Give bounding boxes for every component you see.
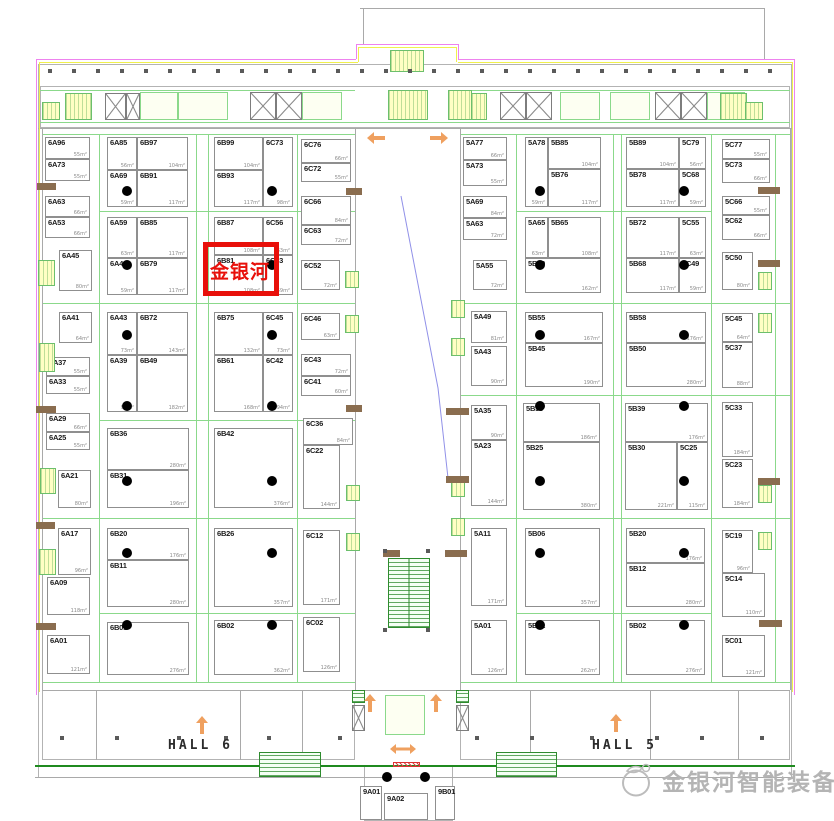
booth-label: 6C73 — [266, 138, 283, 147]
booth-5B72: 5B72117m² — [626, 217, 679, 258]
column-dot — [267, 186, 277, 196]
booth-area: 221m² — [658, 503, 674, 509]
booth-5C01: 5C01121m² — [722, 635, 765, 677]
booth-label: 5B39 — [628, 404, 645, 413]
booth-label: 9B01 — [438, 787, 455, 796]
booth-area: 90m² — [491, 379, 504, 385]
column-dot — [267, 548, 277, 558]
boundary-yellow-line — [358, 47, 456, 48]
booth-label: 5B89 — [629, 138, 646, 147]
booth-label: 6A01 — [50, 636, 67, 645]
booth-5B85: 5B85104m² — [548, 137, 601, 169]
dimension-line — [42, 682, 355, 683]
booth-5A63: 5A6372m² — [463, 218, 507, 240]
booth-5B30: 5B30221m² — [625, 442, 677, 510]
dimension-line — [516, 613, 711, 614]
right-arrow-icon — [430, 132, 448, 144]
booth-area: 66m² — [74, 231, 87, 237]
column-dot — [535, 401, 545, 411]
booth-6B97: 6B97104m² — [137, 137, 188, 170]
column-mark — [480, 69, 484, 73]
booth-5C73: 5C7366m² — [722, 159, 770, 183]
booth-area: 182m² — [169, 405, 185, 411]
booth-label: 6B93 — [217, 171, 234, 180]
booth-area: 84m² — [337, 438, 350, 444]
dimension-line — [516, 211, 711, 212]
stairs-icon — [39, 549, 56, 575]
booth-area: 184m² — [734, 501, 750, 507]
booth-label: 5B30 — [628, 443, 645, 452]
booth-label: 5B65 — [551, 218, 568, 227]
booth-area: 186m² — [581, 435, 597, 441]
booth-label: 6B97 — [140, 138, 157, 147]
booth-label: 6A09 — [50, 578, 67, 587]
column-mark — [600, 69, 604, 73]
booth-6C63: 6C6372m² — [301, 225, 351, 245]
booth-area: 171m² — [488, 599, 504, 605]
booth-5A73: 5A7355m² — [463, 160, 507, 186]
booth-area: 262m² — [581, 668, 597, 674]
dimension-line — [99, 135, 100, 682]
booth-area: 88m² — [737, 381, 750, 387]
boundary-yellow-line — [39, 62, 40, 692]
booth-label: 5B55 — [528, 313, 545, 322]
booth-5B25: 5B25380m² — [523, 442, 600, 510]
dimension-line — [196, 135, 197, 682]
booth-area: 117m² — [169, 200, 185, 206]
booth-5A49: 5A4981m² — [471, 311, 507, 343]
escalator-icon — [259, 752, 321, 777]
booth-area: 115m² — [689, 503, 705, 509]
booth-5C77: 5C7755m² — [722, 139, 770, 159]
booth-area: 176m² — [686, 556, 702, 562]
lintel — [346, 188, 362, 195]
booth-area: 280m² — [686, 600, 702, 606]
booth-area: 280m² — [687, 380, 703, 386]
booth-label: 5B25 — [526, 443, 543, 452]
column-mark — [624, 69, 628, 73]
booth-6B01: 6B01276m² — [107, 622, 189, 675]
dimension-line — [460, 134, 790, 135]
booth-6C52: 6C5272m² — [301, 260, 340, 290]
wall-line — [530, 690, 531, 760]
booth-label: 5B12 — [629, 564, 646, 573]
stairs-icon — [758, 532, 772, 550]
dimension-line — [42, 518, 355, 519]
booth-area: 55m² — [491, 179, 504, 185]
booth-label: 5B06 — [528, 529, 545, 538]
stairs-icon — [346, 485, 360, 501]
dimension-line — [208, 135, 209, 682]
booth-5C23: 5C23184m² — [722, 459, 753, 508]
booth-area: 126m² — [321, 665, 337, 671]
booth-area: 104m² — [169, 163, 185, 169]
column-mark — [552, 69, 556, 73]
booth-label: 5C45 — [725, 314, 742, 323]
stairs-icon — [38, 260, 55, 286]
booth-area: 55m² — [74, 152, 87, 158]
booth-6A63: 6A6366m² — [45, 196, 90, 217]
booth-area: 121m² — [746, 670, 762, 676]
elevator-icon — [500, 92, 526, 120]
dimension-line — [460, 303, 790, 304]
booth-label: 6C46 — [304, 314, 321, 323]
column-mark — [432, 69, 436, 73]
column-mark — [168, 69, 172, 73]
booth-label: 6B49 — [140, 356, 157, 365]
stairs-icon — [345, 315, 359, 333]
lintel — [758, 260, 780, 267]
booth-6C73: 6C7398m² — [263, 137, 293, 207]
stairs-icon — [758, 272, 772, 290]
booth-label: 6C36 — [306, 419, 323, 428]
booth-area: 72m² — [324, 283, 337, 289]
booth-label: 6C42 — [266, 356, 283, 365]
lr-arrow-icon — [390, 744, 416, 754]
highlight-text: 金银河 — [210, 257, 270, 284]
booth-5B76: 5B76117m² — [548, 169, 601, 207]
dimension-line — [460, 682, 790, 683]
booth-area: 117m² — [660, 286, 676, 292]
dimension-line — [40, 90, 355, 91]
booth-area: 280m² — [170, 600, 186, 606]
booth-label: 6A25 — [49, 433, 66, 442]
column-dot — [535, 548, 545, 558]
booth-6B26: 6B26357m² — [214, 528, 293, 607]
booth-5C19: 5C1996m² — [722, 530, 753, 573]
booth-label: 6B75 — [217, 313, 234, 322]
booth-label: 5C25 — [680, 443, 697, 452]
booth-area: 55m² — [74, 369, 87, 375]
booth-6A85: 6A8556m² — [107, 137, 137, 170]
dimension-line — [775, 135, 776, 682]
column-mark — [48, 69, 52, 73]
column-mark — [383, 549, 387, 553]
booth-label: 6B42 — [217, 429, 234, 438]
booth-9A01: 9A01 — [360, 786, 382, 820]
booth-6A21: 6A2180m² — [58, 470, 91, 508]
booth-5C79: 5C7956m² — [679, 137, 706, 169]
booth-6A33: 6A3355m² — [46, 376, 90, 394]
boundary-magenta-line — [458, 44, 459, 59]
column-mark — [528, 69, 532, 73]
booth-area: 117m² — [169, 251, 185, 257]
column-dot — [679, 260, 689, 270]
lintel — [445, 550, 467, 557]
booth-label: 5C55 — [682, 218, 699, 227]
wall-line — [790, 128, 791, 690]
column-mark — [456, 69, 460, 73]
stairs-icon — [65, 93, 92, 120]
booth-label: 6C63 — [304, 226, 321, 235]
booth-label: 6B99 — [217, 138, 234, 147]
booth-5A69: 5A6984m² — [463, 196, 507, 218]
booth-label: 6A69 — [110, 171, 127, 180]
booth-6A96: 6A9655m² — [45, 137, 90, 159]
column-dot — [122, 260, 132, 270]
booth-5C14: 5C14110m² — [722, 573, 765, 617]
stairs-icon — [345, 271, 359, 288]
booth-9A02: 9A02 — [384, 793, 428, 820]
booth-label: 6A29 — [49, 414, 66, 423]
booth-label: 6A53 — [48, 218, 65, 227]
booth-area: 121m² — [71, 667, 87, 673]
column-mark — [700, 736, 704, 740]
hall-6-label: HALL 6 — [168, 738, 233, 753]
column-mark — [696, 69, 700, 73]
booth-9B01: 9B01 — [435, 786, 455, 820]
booth-area: 176m² — [170, 553, 186, 559]
boundary-yellow-line — [39, 62, 358, 63]
booth-label: 5A35 — [474, 406, 491, 415]
booth-area: 117m² — [582, 200, 598, 206]
booth-label: 5B72 — [629, 218, 646, 227]
stairs-icon — [451, 518, 465, 536]
booth-label: 6A63 — [48, 197, 65, 206]
booth-area: 84m² — [491, 211, 504, 217]
elevator-icon — [250, 92, 276, 120]
column-dot — [420, 772, 430, 782]
booth-area: 59m² — [690, 286, 703, 292]
booth-area: 56m² — [121, 163, 134, 169]
booth-label: 6A85 — [110, 138, 127, 147]
service-room — [140, 92, 178, 120]
booth-area: 80m² — [76, 284, 89, 290]
booth-area: 276m² — [170, 668, 186, 674]
booth-area: 118m² — [71, 608, 87, 614]
booth-area: 90m² — [491, 433, 504, 439]
booth-6B42: 6B42376m² — [214, 428, 293, 508]
column-dot — [679, 401, 689, 411]
service-room — [385, 695, 425, 735]
column-mark — [426, 549, 430, 553]
floor-plan-canvas: 6A9655m²6A7355m²6A6366m²6A5366m²6A4580m²… — [0, 0, 834, 821]
dimension-line — [460, 395, 790, 396]
booth-6B11: 6B11280m² — [107, 560, 189, 607]
booth-label: 6A17 — [61, 529, 78, 538]
column-dot — [122, 476, 132, 486]
booth-area: 66m² — [491, 153, 504, 159]
column-mark — [408, 69, 412, 73]
escalator-icon — [496, 752, 557, 777]
boundary-magenta-line — [356, 44, 458, 45]
booth-area: 280m² — [170, 463, 186, 469]
booth-area: 64m² — [737, 335, 750, 341]
booth-area: 104m² — [244, 163, 260, 169]
boundary-yellow-line — [458, 62, 792, 63]
booth-6A45: 6A4580m² — [59, 250, 92, 291]
booth-area: 144m² — [488, 499, 504, 505]
stairs-icon — [39, 343, 55, 372]
dimension-line — [460, 518, 790, 519]
column-mark — [720, 69, 724, 73]
booth-label: 6C41 — [304, 377, 321, 386]
booth-area: 143m² — [169, 348, 185, 354]
booth-label: 6A45 — [62, 251, 79, 260]
column-mark — [360, 69, 364, 73]
booth-label: 5A78 — [528, 138, 545, 147]
column-dot — [679, 186, 689, 196]
column-mark — [383, 628, 387, 632]
booth-6B49: 6B49182m² — [137, 355, 188, 412]
booth-area: 376m² — [274, 501, 290, 507]
column-mark — [60, 736, 64, 740]
booth-5B50: 5B50280m² — [626, 343, 706, 387]
column-dot — [535, 260, 545, 270]
booth-area: 80m² — [75, 501, 88, 507]
dimension-line — [711, 135, 712, 682]
logo-text: 金银河智能装备 — [662, 763, 834, 797]
wall-line — [738, 690, 739, 760]
booth-area: 162m² — [582, 286, 598, 292]
booth-area: 72m² — [491, 283, 504, 289]
booth-6C46: 6C4663m² — [301, 313, 340, 340]
booth-6B02: 6B02362m² — [214, 620, 293, 675]
booth-area: 63m² — [690, 251, 703, 257]
booth-label: 5A55 — [476, 261, 493, 270]
booth-6C02: 6C02126m² — [303, 617, 340, 672]
column-mark — [504, 69, 508, 73]
column-mark — [192, 69, 196, 73]
booth-label: 5B50 — [629, 344, 646, 353]
column-mark — [384, 69, 388, 73]
lintel — [346, 405, 362, 412]
booth-6A01: 6A01121m² — [47, 635, 90, 674]
column-mark — [216, 69, 220, 73]
column-dot — [679, 548, 689, 558]
booth-5B12: 5B12280m² — [626, 563, 705, 607]
booth-area: 60m² — [335, 389, 348, 395]
booth-area: 98m² — [277, 200, 290, 206]
booth-area: 56m² — [690, 162, 703, 168]
booth-area: 357m² — [581, 600, 597, 606]
booth-area: 144m² — [321, 502, 337, 508]
column-mark — [672, 69, 676, 73]
service-room — [178, 92, 228, 120]
wall-line — [363, 8, 364, 44]
wall-line — [96, 690, 97, 760]
booth-5C55: 5C5563m² — [679, 217, 706, 258]
escalator-icon — [456, 690, 469, 703]
booth-area: 117m² — [660, 251, 676, 257]
booth-5C45: 5C4564m² — [722, 313, 753, 342]
boundary-yellow-line — [792, 62, 793, 692]
booth-6B79: 6B79117m² — [137, 258, 188, 295]
booth-5B20: 5B20176m² — [626, 528, 705, 563]
booth-label: 6B11 — [110, 561, 127, 570]
booth-label: 5A65 — [528, 218, 545, 227]
booth-5B78: 5B78117m² — [626, 169, 679, 207]
column-dot — [535, 476, 545, 486]
service-room — [560, 92, 600, 120]
column-mark — [72, 69, 76, 73]
booth-5A11: 5A11171m² — [471, 528, 507, 606]
booth-label: 5C37 — [725, 343, 742, 352]
booth-label: 5C33 — [725, 403, 742, 412]
booth-area: 59m² — [532, 200, 545, 206]
stairs-icon — [745, 102, 763, 120]
booth-label: 9A02 — [387, 794, 404, 803]
column-mark — [312, 69, 316, 73]
column-dot — [267, 330, 277, 340]
booth-label: 5C50 — [725, 253, 742, 262]
escalator-icon — [388, 558, 430, 628]
up-arrow-icon — [430, 694, 442, 712]
booth-5A65: 5A6563m² — [525, 217, 548, 258]
booth-6B20: 6B20176m² — [107, 528, 189, 560]
booth-label: 5C79 — [682, 138, 699, 147]
stairs-icon — [758, 485, 772, 503]
booth-area: 72m² — [491, 233, 504, 239]
booth-5A78: 5A7859m² — [525, 137, 548, 207]
lintel — [36, 522, 55, 529]
booth-label: 5C77 — [725, 140, 742, 149]
booth-5B45: 5B45190m² — [525, 343, 603, 387]
column-mark — [144, 69, 148, 73]
booth-label: 5C62 — [725, 216, 742, 225]
lintel — [36, 406, 56, 413]
booth-area: 80m² — [737, 283, 750, 289]
booth-label: 6A59 — [110, 218, 127, 227]
booth-label: 5C01 — [725, 636, 742, 645]
column-dot — [122, 548, 132, 558]
booth-area: 132m² — [244, 348, 260, 354]
booth-5B39: 5B39176m² — [625, 403, 708, 442]
booth-area: 55m² — [74, 174, 87, 180]
booth-6C43: 6C4372m² — [301, 354, 351, 376]
booth-label: 6B26 — [217, 529, 234, 538]
elevator-icon — [276, 92, 302, 120]
booth-label: 5C23 — [725, 460, 742, 469]
booth-6B85: 6B85117m² — [137, 217, 188, 258]
column-dot — [679, 330, 689, 340]
booth-label: 5B76 — [551, 170, 568, 179]
column-mark — [115, 736, 119, 740]
booth-label: 5B85 — [551, 138, 568, 147]
booth-label: 6A96 — [48, 138, 65, 147]
booth-label: 6A41 — [62, 313, 79, 322]
column-mark — [768, 69, 772, 73]
booth-label: 6C43 — [304, 355, 321, 364]
column-dot — [267, 476, 277, 486]
up-arrow-icon — [364, 694, 376, 712]
booth-area: 55m² — [754, 152, 767, 158]
booth-label: 5A69 — [466, 197, 483, 206]
column-mark — [267, 736, 271, 740]
stairs-icon — [451, 338, 465, 356]
column-mark — [288, 69, 292, 73]
column-mark — [338, 736, 342, 740]
booth-5C37: 5C3788m² — [722, 342, 753, 388]
up-arrow-icon — [610, 714, 622, 732]
booth-area: 110m² — [746, 610, 762, 616]
column-dot — [122, 401, 132, 411]
booth-area: 196m² — [170, 501, 186, 507]
wall-line — [42, 690, 790, 691]
booth-label: 6B91 — [140, 171, 157, 180]
boundary-magenta-line — [458, 59, 794, 60]
booth-label: 5A43 — [474, 347, 491, 356]
booth-label: 5C66 — [725, 197, 742, 206]
boundary-magenta-line — [36, 59, 37, 695]
booth-label: 6C66 — [304, 197, 321, 206]
elevator-icon — [526, 92, 552, 120]
booth-6A29: 6A2966m² — [46, 413, 90, 432]
service-room — [302, 92, 342, 120]
booth-6A59: 6A5963m² — [107, 217, 137, 258]
booth-area: 96m² — [75, 568, 88, 574]
stairs-icon — [40, 468, 56, 494]
